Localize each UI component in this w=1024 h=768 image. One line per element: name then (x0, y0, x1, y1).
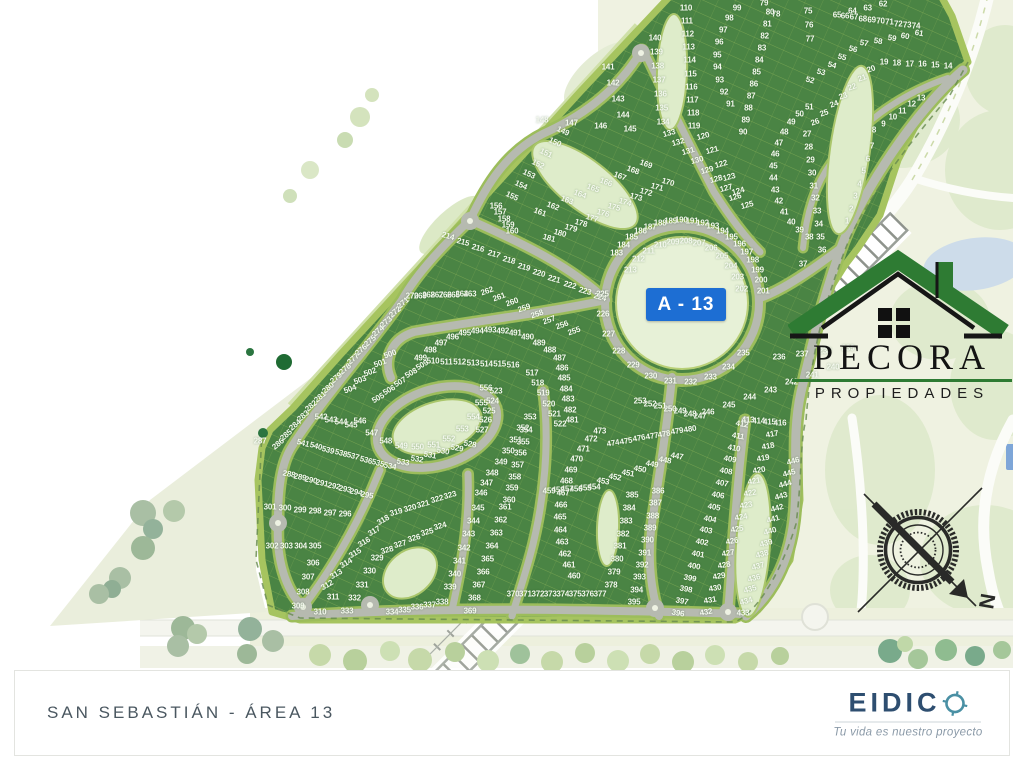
brand-tagline: Tu vida es nuestro proyecto (833, 727, 983, 739)
watermark-rule (792, 379, 1012, 382)
crosshair-icon (942, 690, 968, 716)
outer-roundabout (802, 604, 828, 630)
window-icon (878, 308, 910, 338)
watermark-subtitle: PROPIEDADES (788, 385, 1016, 402)
brand-name: EIDIC (848, 688, 940, 719)
watermark-name: PECORA (788, 336, 1016, 378)
map-canvas: 1234567891011121314151617181920212223242… (0, 0, 1024, 670)
compass-icon: N (848, 486, 998, 616)
brand-watermark: PECORA PROPIEDADES (788, 248, 1016, 408)
compass-north-label: N (974, 592, 998, 611)
site-plan-page: 1234567891011121314151617181920212223242… (0, 0, 1024, 768)
house-logo-icon (788, 248, 1016, 340)
brand-divider (835, 722, 981, 723)
plan-title: SAN SEBASTIÁN - ÁREA 13 (47, 703, 335, 723)
footer-bar: SAN SEBASTIÁN - ÁREA 13 EIDIC Tu vida es… (14, 670, 1010, 756)
area-badge: A - 13 (646, 288, 726, 321)
developer-brand: EIDIC Tu vida es nuestro proyecto (833, 688, 983, 739)
